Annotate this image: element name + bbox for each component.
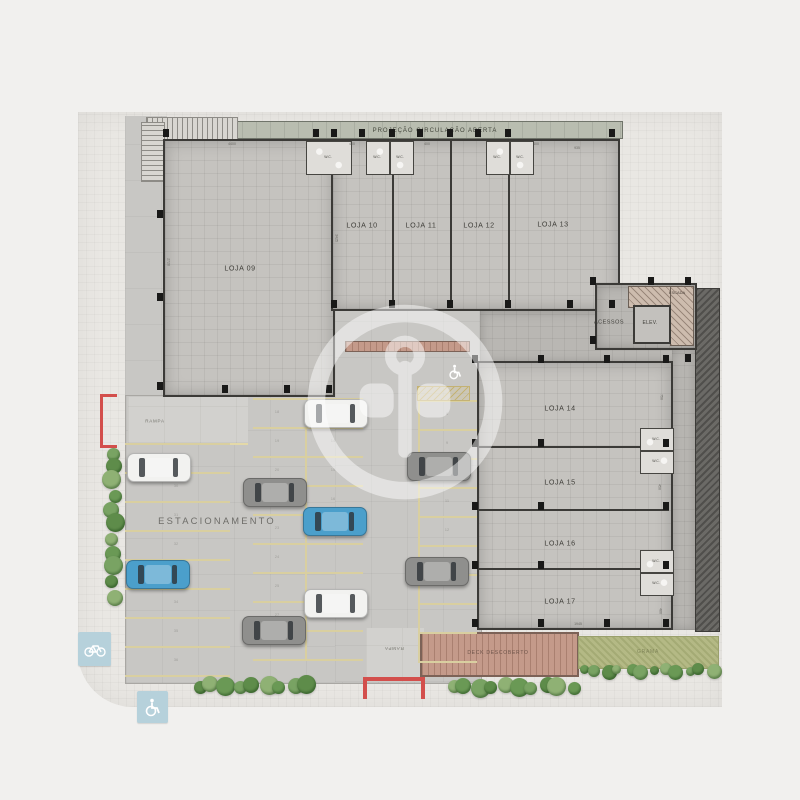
- column-marker: [663, 502, 669, 510]
- car-white: [127, 453, 191, 482]
- column-marker: [331, 129, 337, 137]
- dimension-label: 400: [424, 142, 430, 146]
- car-windshield: [316, 404, 322, 423]
- parking-spot-number: 30: [174, 484, 178, 488]
- parking-spot-number: 9: [446, 441, 448, 445]
- column-marker: [472, 619, 478, 627]
- wc-label: W.C.: [324, 155, 332, 159]
- car-windshield: [138, 565, 144, 584]
- parking-spot-number: 34: [174, 600, 178, 604]
- car-white: [304, 399, 368, 428]
- entrance-marker-bottom-left-leg: [363, 677, 367, 699]
- car-gray: [405, 557, 469, 586]
- store-label: LOJA 10: [346, 221, 377, 228]
- store-label: LOJA 09: [224, 264, 255, 271]
- parking-label: ESTACIONAMENTO: [158, 516, 276, 525]
- parking-stall-line: [418, 429, 477, 431]
- parking-spot-number: 35: [174, 629, 178, 633]
- bush: [547, 677, 566, 696]
- car-gray: [243, 478, 307, 507]
- column-marker: [157, 293, 163, 301]
- car-roof: [145, 565, 171, 584]
- entrance-marker-left-bar: [100, 394, 103, 448]
- bush: [102, 470, 121, 489]
- column-marker: [538, 502, 544, 510]
- car-white: [304, 589, 368, 618]
- parking-divider-line: [418, 386, 420, 661]
- column-marker: [663, 355, 669, 363]
- store-label: LOJA 13: [537, 220, 568, 227]
- parking-spot-number: 19: [275, 439, 279, 443]
- wheelchair-icon: [448, 364, 462, 380]
- entrance-marker-bottom-bar: [363, 677, 425, 681]
- car-rear-window: [349, 512, 354, 531]
- dimension-label: 750: [659, 394, 663, 400]
- column-marker: [604, 619, 610, 627]
- column-marker: [663, 439, 669, 447]
- car-rear-window: [453, 457, 458, 476]
- wc-room: [640, 550, 674, 596]
- parking-stall-line: [418, 545, 477, 547]
- ramp-top-label: RAMPA: [145, 419, 164, 424]
- dimension-label: 4400: [228, 142, 236, 146]
- dimension-label: 3425: [334, 234, 338, 242]
- parking-stall-line: [418, 603, 477, 605]
- column-marker: [472, 355, 478, 363]
- column-marker: [472, 502, 478, 510]
- bicycle-icon: [84, 642, 106, 657]
- car-blue: [303, 507, 367, 536]
- column-marker: [359, 129, 365, 137]
- parking-stall-line: [418, 516, 477, 518]
- accessibility-sign-square: [137, 691, 168, 723]
- dimension-label: 400: [533, 142, 539, 146]
- grass-label: GRAMA: [637, 650, 659, 655]
- column-marker: [505, 129, 511, 137]
- car-rear-window: [451, 562, 456, 581]
- ramp-bottom-label: RAMPA: [384, 646, 403, 651]
- bush: [524, 682, 537, 695]
- wc-label: W.C.: [652, 459, 660, 463]
- column-marker: [538, 619, 544, 627]
- parking-spot-number: 8: [446, 412, 448, 416]
- bush: [105, 533, 118, 546]
- column-marker: [389, 300, 395, 308]
- bush: [707, 664, 722, 679]
- car-blue: [126, 560, 190, 589]
- column-marker: [331, 300, 337, 308]
- dimension-label: 450: [657, 484, 661, 490]
- column-marker: [609, 129, 615, 137]
- car-roof: [424, 562, 450, 581]
- column-marker: [389, 129, 395, 137]
- bush: [297, 675, 316, 694]
- store-label: LOJA 14: [544, 404, 575, 411]
- car-windshield: [316, 594, 322, 613]
- store-label: LOJA 17: [544, 597, 575, 604]
- wc-divider-wall: [389, 142, 391, 174]
- store-label: LOJA 12: [463, 221, 494, 228]
- column-marker: [163, 129, 169, 137]
- column-marker: [685, 354, 691, 362]
- wc-room: [640, 428, 674, 474]
- store-label: LOJA 16: [544, 539, 575, 546]
- car-rear-window: [350, 594, 355, 613]
- column-marker: [648, 277, 654, 285]
- wc-divider-wall: [641, 572, 673, 574]
- column-marker: [284, 385, 290, 393]
- bush: [106, 513, 125, 532]
- car-windshield: [255, 483, 261, 502]
- column-marker: [417, 129, 423, 137]
- bush: [612, 665, 621, 674]
- store-label: LOJA 15: [544, 478, 575, 485]
- wc-divider-wall: [641, 450, 673, 452]
- parking-spot-number: 25: [275, 584, 279, 588]
- column-marker: [472, 439, 478, 447]
- escada-label: ESCADA: [669, 291, 685, 295]
- column-marker: [538, 439, 544, 447]
- car-windshield: [315, 512, 321, 531]
- dimension-label: 935: [574, 146, 580, 150]
- parking-spot-number: 20: [275, 468, 279, 472]
- parking-stall-line: [253, 543, 363, 545]
- car-rear-window: [288, 621, 293, 640]
- column-marker: [447, 300, 453, 308]
- car-rear-window: [173, 458, 178, 477]
- dimension-label: 480: [658, 608, 662, 614]
- car-gray: [407, 452, 471, 481]
- car-rear-window: [172, 565, 177, 584]
- bush: [243, 677, 259, 693]
- stairs-escada-side: [670, 286, 694, 346]
- car-roof: [323, 404, 349, 423]
- column-marker: [538, 561, 544, 569]
- car-roof: [262, 483, 288, 502]
- dimension-label: 400: [349, 142, 355, 146]
- parking-spot-number: 14: [331, 439, 335, 443]
- parking-stall-line: [125, 617, 230, 619]
- bush: [105, 575, 118, 588]
- column-marker: [222, 385, 228, 393]
- column-marker: [538, 355, 544, 363]
- bush: [455, 678, 471, 694]
- parking-spot-number: 18: [275, 410, 279, 414]
- column-marker: [472, 561, 478, 569]
- wc-label: W.C.: [652, 581, 660, 585]
- car-rear-window: [350, 404, 355, 423]
- bush: [272, 681, 285, 694]
- car-windshield: [417, 562, 423, 581]
- wc-label: W.C.: [396, 155, 404, 159]
- car-roof: [426, 457, 452, 476]
- parking-stall-line: [418, 661, 477, 663]
- car-roof: [323, 594, 349, 613]
- wc-label: W.C.: [516, 155, 524, 159]
- store-label: LOJA 11: [406, 221, 437, 228]
- column-marker: [663, 619, 669, 627]
- parking-spot-number: 16: [331, 497, 335, 501]
- parking-stall-line: [125, 530, 230, 532]
- column-marker: [157, 382, 163, 390]
- dimension-label: 1945: [574, 622, 582, 626]
- wall-loja15-16: [479, 509, 669, 511]
- ramp-bottom-area: [366, 628, 424, 682]
- column-marker: [590, 277, 596, 285]
- wc-divider-wall: [509, 142, 511, 174]
- parking-spot-number: 15: [331, 468, 335, 472]
- parking-stall-line: [253, 659, 363, 661]
- site-plan: PROJEÇÃO CIRCULAÇÃO ABERTA DECK DESCOBER…: [0, 0, 800, 800]
- column-marker: [157, 210, 163, 218]
- side-corridor: [672, 348, 695, 630]
- wheelchair-icon: [144, 698, 161, 717]
- parking-spot-number: 12: [445, 528, 449, 532]
- deck-walkway-strip: [345, 341, 470, 352]
- column-marker: [609, 300, 615, 308]
- column-marker: [447, 129, 453, 137]
- parking-spot-number: 36: [174, 658, 178, 662]
- parking-stall-line: [418, 632, 477, 634]
- bush: [484, 681, 497, 694]
- parking-stall-line: [418, 487, 477, 489]
- car-rear-window: [289, 483, 294, 502]
- deck-label: DECK DESCOBERTO: [467, 651, 528, 656]
- wc-label: W.C.: [652, 437, 660, 441]
- bush: [216, 677, 235, 696]
- bush: [692, 663, 704, 675]
- car-roof: [146, 458, 172, 477]
- retaining-wall-strip: [695, 288, 720, 632]
- parking-spot-number: 32: [174, 542, 178, 546]
- column-marker: [475, 129, 481, 137]
- wc-label: W.C.: [373, 155, 381, 159]
- column-marker: [604, 355, 610, 363]
- dimension-label: 2720: [166, 258, 170, 266]
- column-marker: [590, 336, 596, 344]
- column-marker: [567, 300, 573, 308]
- column-marker: [505, 300, 511, 308]
- parking-stall-line: [125, 646, 230, 648]
- parking-stall-line: [253, 572, 363, 574]
- car-roof: [322, 512, 348, 531]
- column-marker: [326, 385, 332, 393]
- parking-spot-number: 31: [174, 513, 178, 517]
- entrance-marker-bottom-right-leg: [421, 677, 425, 699]
- parking-stall-line: [253, 456, 363, 458]
- column-marker: [313, 129, 319, 137]
- acessos-label: ACESSOS: [594, 319, 624, 325]
- wc-label: W.C.: [652, 559, 660, 563]
- car-roof: [261, 621, 287, 640]
- exterior-stairs-left: [141, 122, 165, 182]
- parking-spot-number: 11: [445, 499, 449, 503]
- elev-label: ELEV.: [643, 321, 658, 326]
- car-windshield: [254, 621, 260, 640]
- parking-spot-number: 24: [275, 555, 279, 559]
- column-marker: [685, 277, 691, 285]
- wall-loja11-12: [450, 141, 452, 307]
- parking-stall-line: [125, 443, 230, 445]
- accessible-parking-icon: [448, 364, 462, 380]
- car-windshield: [139, 458, 145, 477]
- parking-spot-number: 23: [275, 526, 279, 530]
- wc-label: W.C.: [493, 155, 501, 159]
- car-gray: [242, 616, 306, 645]
- column-marker: [663, 561, 669, 569]
- bicycle-sign-square: [78, 632, 111, 666]
- parking-stall-line: [125, 501, 230, 503]
- car-windshield: [419, 457, 425, 476]
- accessible-parking-hatch: [417, 386, 470, 401]
